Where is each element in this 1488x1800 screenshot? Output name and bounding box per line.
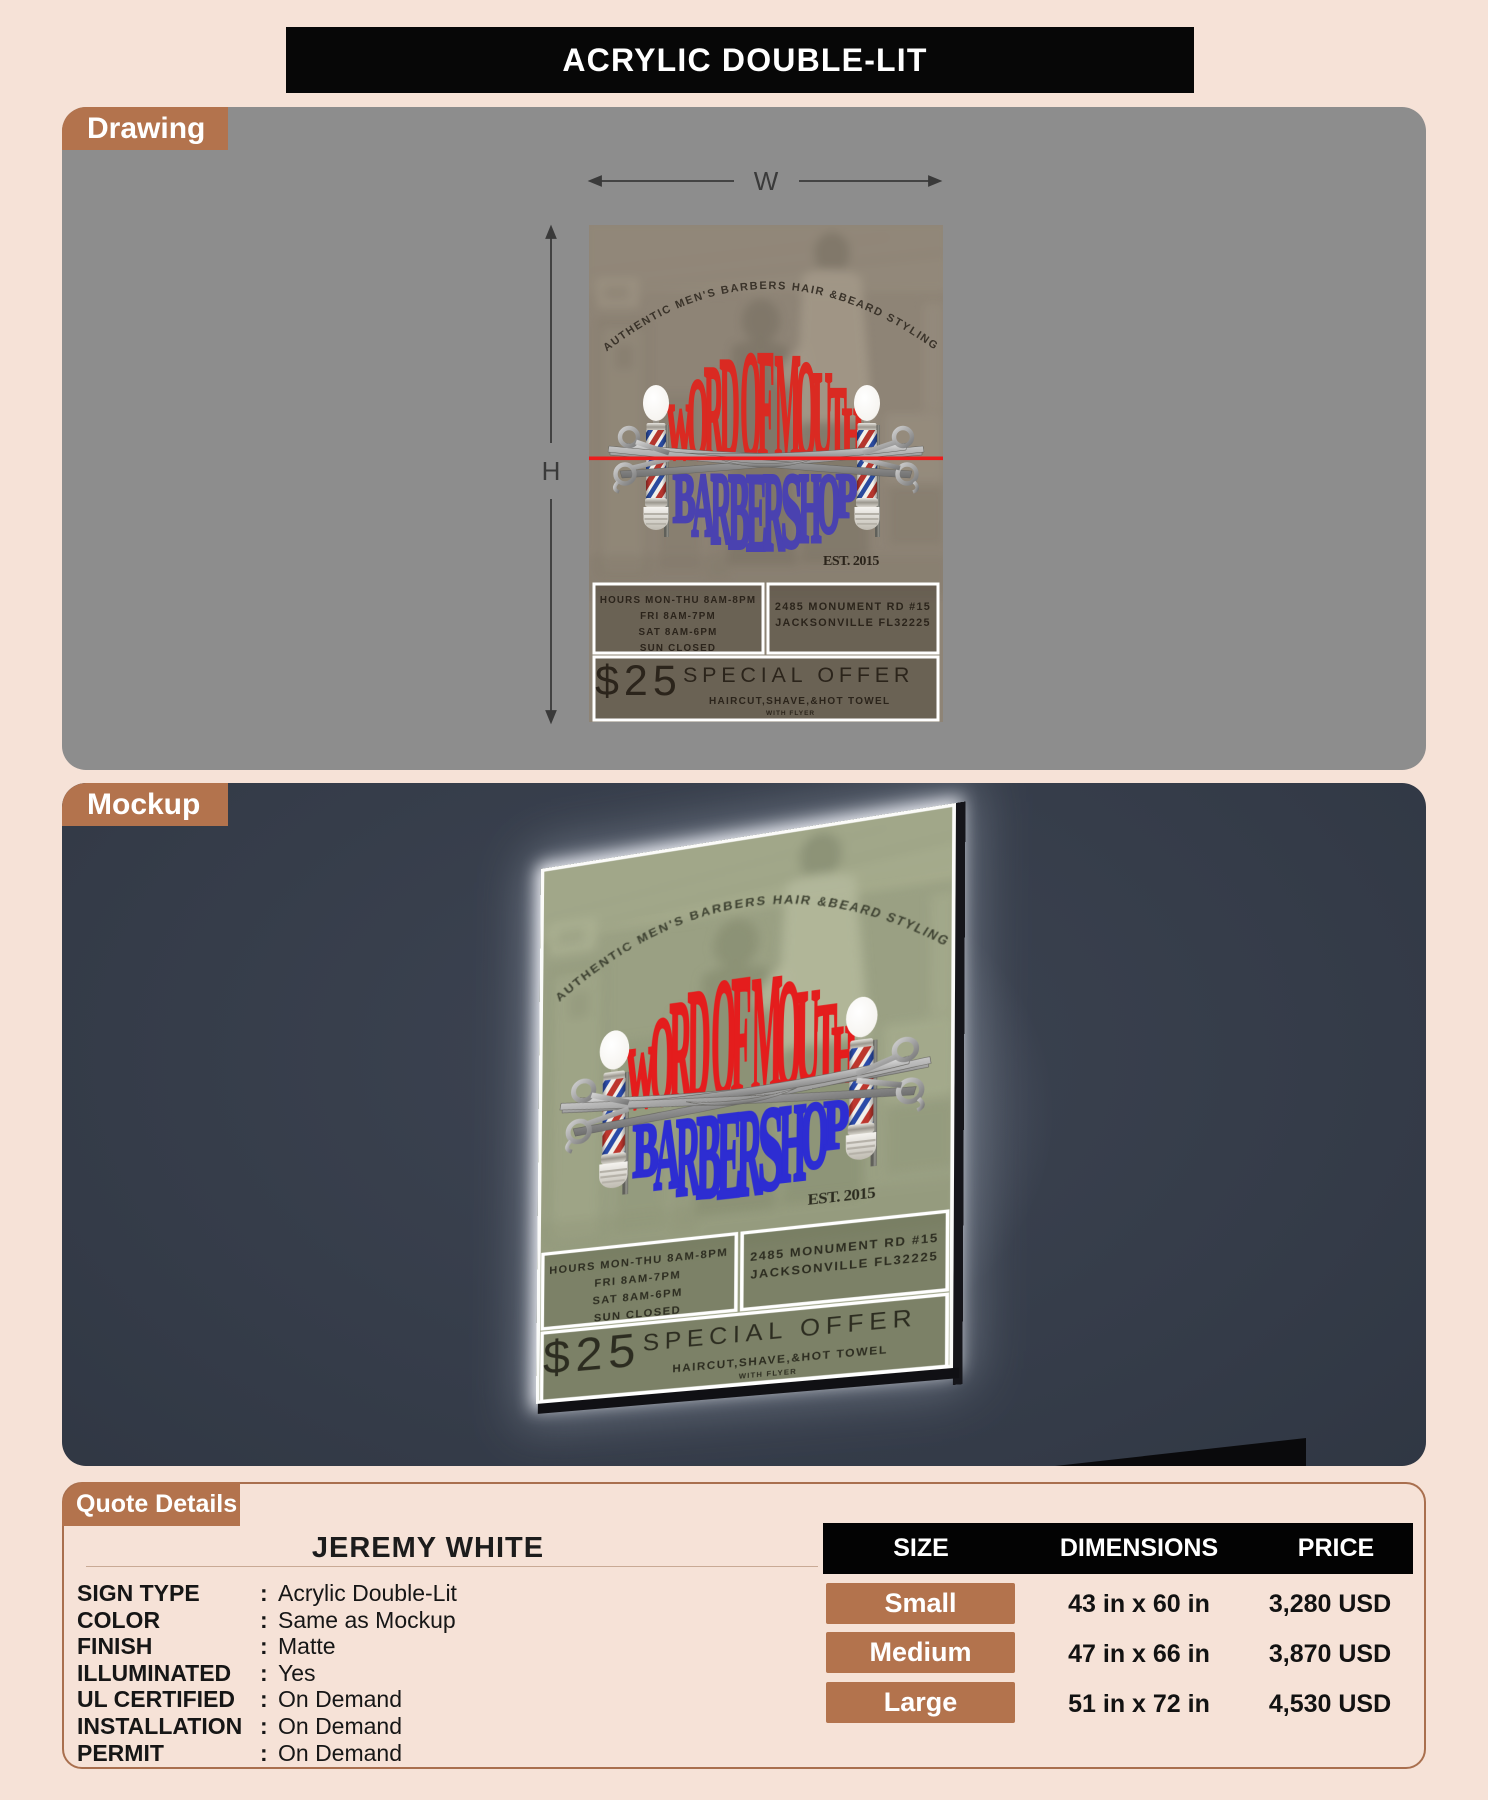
svg-text:WITH FLYER: WITH FLYER bbox=[766, 710, 815, 717]
svg-text:$25: $25 bbox=[543, 1323, 642, 1384]
svg-text:$25: $25 bbox=[595, 657, 682, 705]
svg-text:EST. 2015: EST. 2015 bbox=[823, 554, 879, 569]
svg-text:FRI 8AM-7PM: FRI 8AM-7PM bbox=[640, 611, 716, 622]
svg-text:JACKSONVILLE FL32225: JACKSONVILLE FL32225 bbox=[775, 617, 931, 629]
svg-text:SUN CLOSED: SUN CLOSED bbox=[640, 643, 716, 654]
svg-text:H: H bbox=[542, 456, 561, 486]
svg-text:HAIRCUT,SHAVE,&HOT TOWEL: HAIRCUT,SHAVE,&HOT TOWEL bbox=[709, 696, 890, 707]
svg-text:W: W bbox=[754, 166, 779, 196]
svg-text:SPECIAL OFFER: SPECIAL OFFER bbox=[683, 663, 914, 687]
svg-text:SAT 8AM-6PM: SAT 8AM-6PM bbox=[639, 627, 718, 638]
svg-text:HOURS MON-THU 8AM-8PM: HOURS MON-THU 8AM-8PM bbox=[600, 595, 756, 606]
svg-text:2485 MONUMENT RD #15: 2485 MONUMENT RD #15 bbox=[775, 601, 931, 613]
